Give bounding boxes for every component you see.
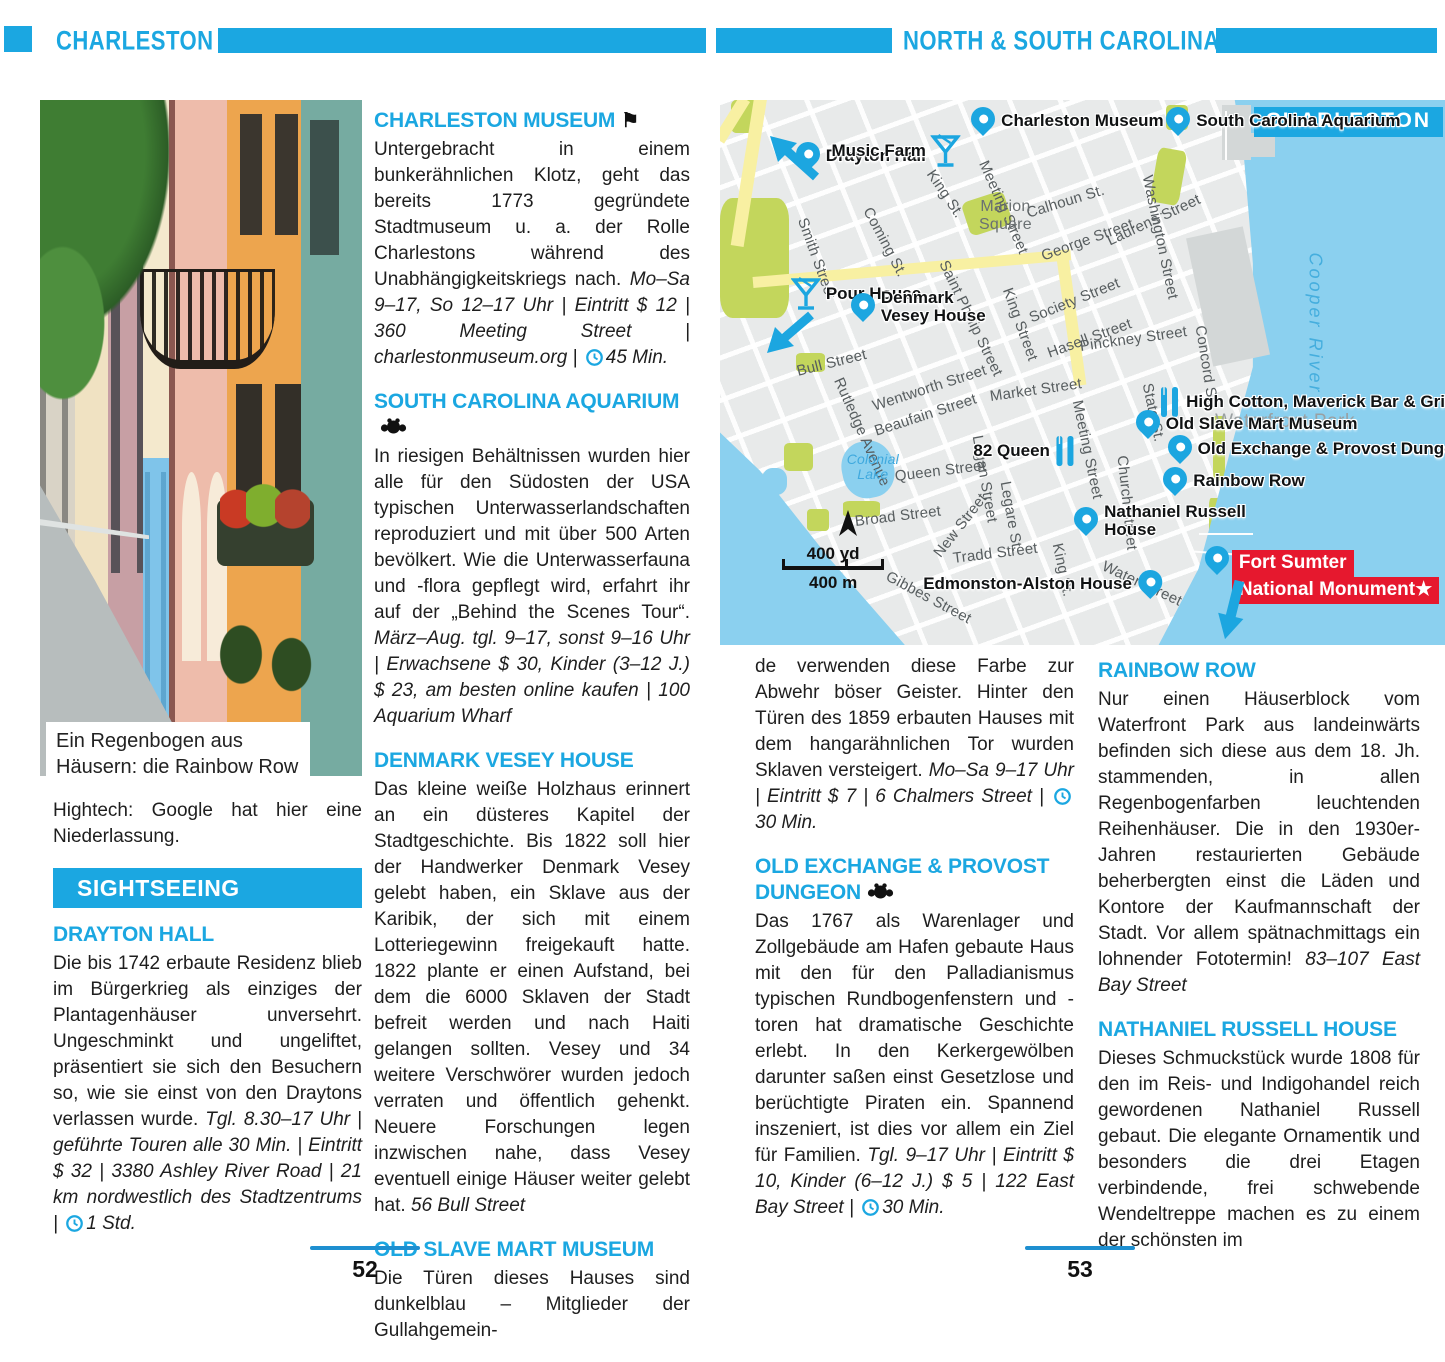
- pour-house-direction-arrow: [765, 307, 823, 355]
- article-heading-rainbow-row: RAINBOW ROW: [1098, 658, 1420, 684]
- article-body-nathaniel-russell-house: Dieses Schmuckstück wurde 1808 für den i…: [1098, 1046, 1420, 1254]
- map-poi: Nathaniel RussellHouse: [1073, 503, 1246, 539]
- poi-label: 82 Queen: [973, 442, 1050, 460]
- map-pin-icon: [1135, 409, 1161, 439]
- article-body-south-carolina-aquarium: In riesigen Behältnissen wurden hier all…: [374, 444, 690, 730]
- duration-clock-icon: [65, 1214, 84, 1233]
- article-heading-denmark-vesey-house: DENMARK VESEY HOUSE: [374, 748, 690, 774]
- cocktail-icon: [931, 134, 961, 168]
- map-feature-label: Colonial Lake: [842, 452, 904, 483]
- city-map: CHARLESTON Fort Sumter National Monument…: [720, 100, 1445, 645]
- poi-label: Nathaniel RussellHouse: [1104, 503, 1246, 539]
- bush: [269, 634, 314, 695]
- article-body-denmark-vesey-house: Das kleine weiße Holzhaus erinnert an ei…: [374, 777, 690, 1219]
- map-poi: Old Exchange & Provost Dungeon: [1167, 434, 1445, 464]
- article-heading-charleston-museum: CHARLESTON MUSEUM⚑: [374, 108, 690, 134]
- column-1: Hightech: Google hat hier eine Niederlas…: [53, 798, 362, 1255]
- article-heading-old-slave-mart-museum: OLD SLAVE MART MUSEUM: [374, 1237, 690, 1263]
- duration-clock-icon: [1053, 787, 1072, 806]
- map-poi: Charleston Museum: [970, 106, 1163, 136]
- family-icon: [380, 418, 407, 436]
- photo-caption: Ein Regenbogen aus Häusern: die Rainbow …: [46, 722, 310, 788]
- map-pin-icon: [1073, 506, 1099, 536]
- article-heading-drayton-hall: DRAYTON HALL: [53, 922, 362, 948]
- header-bar-left: [218, 28, 706, 53]
- duration-clock-icon: [585, 348, 604, 367]
- map-pin-icon: [1137, 569, 1163, 599]
- poi-label: Old Exchange & Provost Dungeon: [1198, 440, 1445, 458]
- article-body-old-slave-mart-museum: Die Türen dieses Hauses sind dunkelblau …: [374, 1266, 690, 1344]
- star-icon: ★: [1415, 579, 1432, 600]
- fort-sumter-label: Fort Sumter National Monument ★: [1232, 550, 1439, 604]
- article-body-old-slave-mart-museum-continued: de verwenden diese Farbe zur Abwehr böse…: [755, 654, 1074, 836]
- map-poi: [1204, 545, 1230, 575]
- map-poi: Rainbow Row: [1162, 466, 1304, 496]
- map-pin-icon: [850, 292, 876, 322]
- article-body-rainbow-row: Nur einen Häuserblock vom Waterfront Par…: [1098, 687, 1420, 999]
- cocktail-icon: [791, 277, 821, 311]
- sightseeing-banner: SIGHTSEEING: [53, 868, 362, 908]
- poi-label: DenmarkVesey House: [881, 289, 986, 325]
- map-pin-icon: [970, 106, 996, 136]
- duration-clock-icon: [861, 1198, 880, 1217]
- header-accent-square-left: [4, 26, 32, 52]
- map-pin-icon: [1204, 545, 1230, 575]
- page-number-left: 52: [310, 1256, 420, 1283]
- article-heading-south-carolina-aquarium: SOUTH CAROLINA AQUARIUM: [374, 389, 690, 441]
- map-poi: South Carolina Aquarium: [1165, 106, 1400, 136]
- map-scale: 400 yd 400 m: [782, 544, 884, 593]
- header-bar-right: [716, 28, 892, 53]
- poi-label: Music Farm: [831, 142, 925, 160]
- scale-meters: 400 m: [782, 573, 884, 593]
- poi-label: Rainbow Row: [1193, 472, 1304, 490]
- map-poi: Music Farm: [831, 134, 960, 168]
- map-poi: DenmarkVesey House: [850, 289, 986, 325]
- column-2: CHARLESTON MUSEUM⚑ Untergebracht in eine…: [374, 108, 690, 1362]
- article-body-drayton-hall: Die bis 1742 erbaute Residenz blieb im B…: [53, 951, 362, 1237]
- article-heading-old-exchange: OLD EXCHANGE & PROVOST DUNGEON: [755, 854, 1074, 906]
- column-4: RAINBOW ROW Nur einen Häuserblock vom Wa…: [1098, 658, 1420, 1272]
- page-title-right: NORTH & SOUTH CAROLINA: [903, 26, 1220, 57]
- family-icon: [867, 883, 894, 901]
- map-poi: 82 Queen: [973, 436, 1077, 466]
- flag-icon: ⚑: [621, 110, 639, 132]
- poi-label: Edmonston-Alston House: [923, 575, 1132, 593]
- footer-rule-right: [1025, 1246, 1135, 1250]
- intro-paragraph: Hightech: Google hat hier eine Niederlas…: [53, 798, 362, 850]
- bush: [217, 621, 265, 689]
- map-pin-icon: [795, 141, 821, 171]
- poi-label: Charleston Museum: [1001, 112, 1163, 130]
- map-pin-icon: [1167, 434, 1193, 464]
- article-heading-nathaniel-russell-house: NATHANIEL RUSSELL HOUSE: [1098, 1017, 1420, 1043]
- map-pin-icon: [1162, 466, 1188, 496]
- map-poi: Edmonston-Alston House: [923, 569, 1163, 599]
- article-body-charleston-museum: Untergebracht in einem bunkerähnlichen K…: [374, 137, 690, 371]
- footer-rule-left: [310, 1246, 420, 1250]
- map-feature-label: Cooper River: [1304, 252, 1325, 394]
- header-bar-right-end: [1216, 28, 1437, 53]
- poi-label: Old Slave Mart Museum: [1166, 415, 1358, 433]
- restaurant-icon: [1055, 436, 1077, 466]
- page-number-right: 53: [1025, 1256, 1135, 1283]
- map-feature-label: Marion Square: [961, 198, 1049, 234]
- map-pin-icon: [1165, 106, 1191, 136]
- column-3: de verwenden diese Farbe zur Abwehr böse…: [755, 654, 1074, 1239]
- poi-label: South Carolina Aquarium: [1196, 112, 1400, 130]
- page-title-left: CHARLESTON: [56, 26, 214, 57]
- rainbow-row-photo: [40, 100, 362, 776]
- scale-yards: 400 yd: [782, 544, 884, 564]
- article-body-old-exchange: Das 1767 als Warenlager und Zollgebäude …: [755, 909, 1074, 1221]
